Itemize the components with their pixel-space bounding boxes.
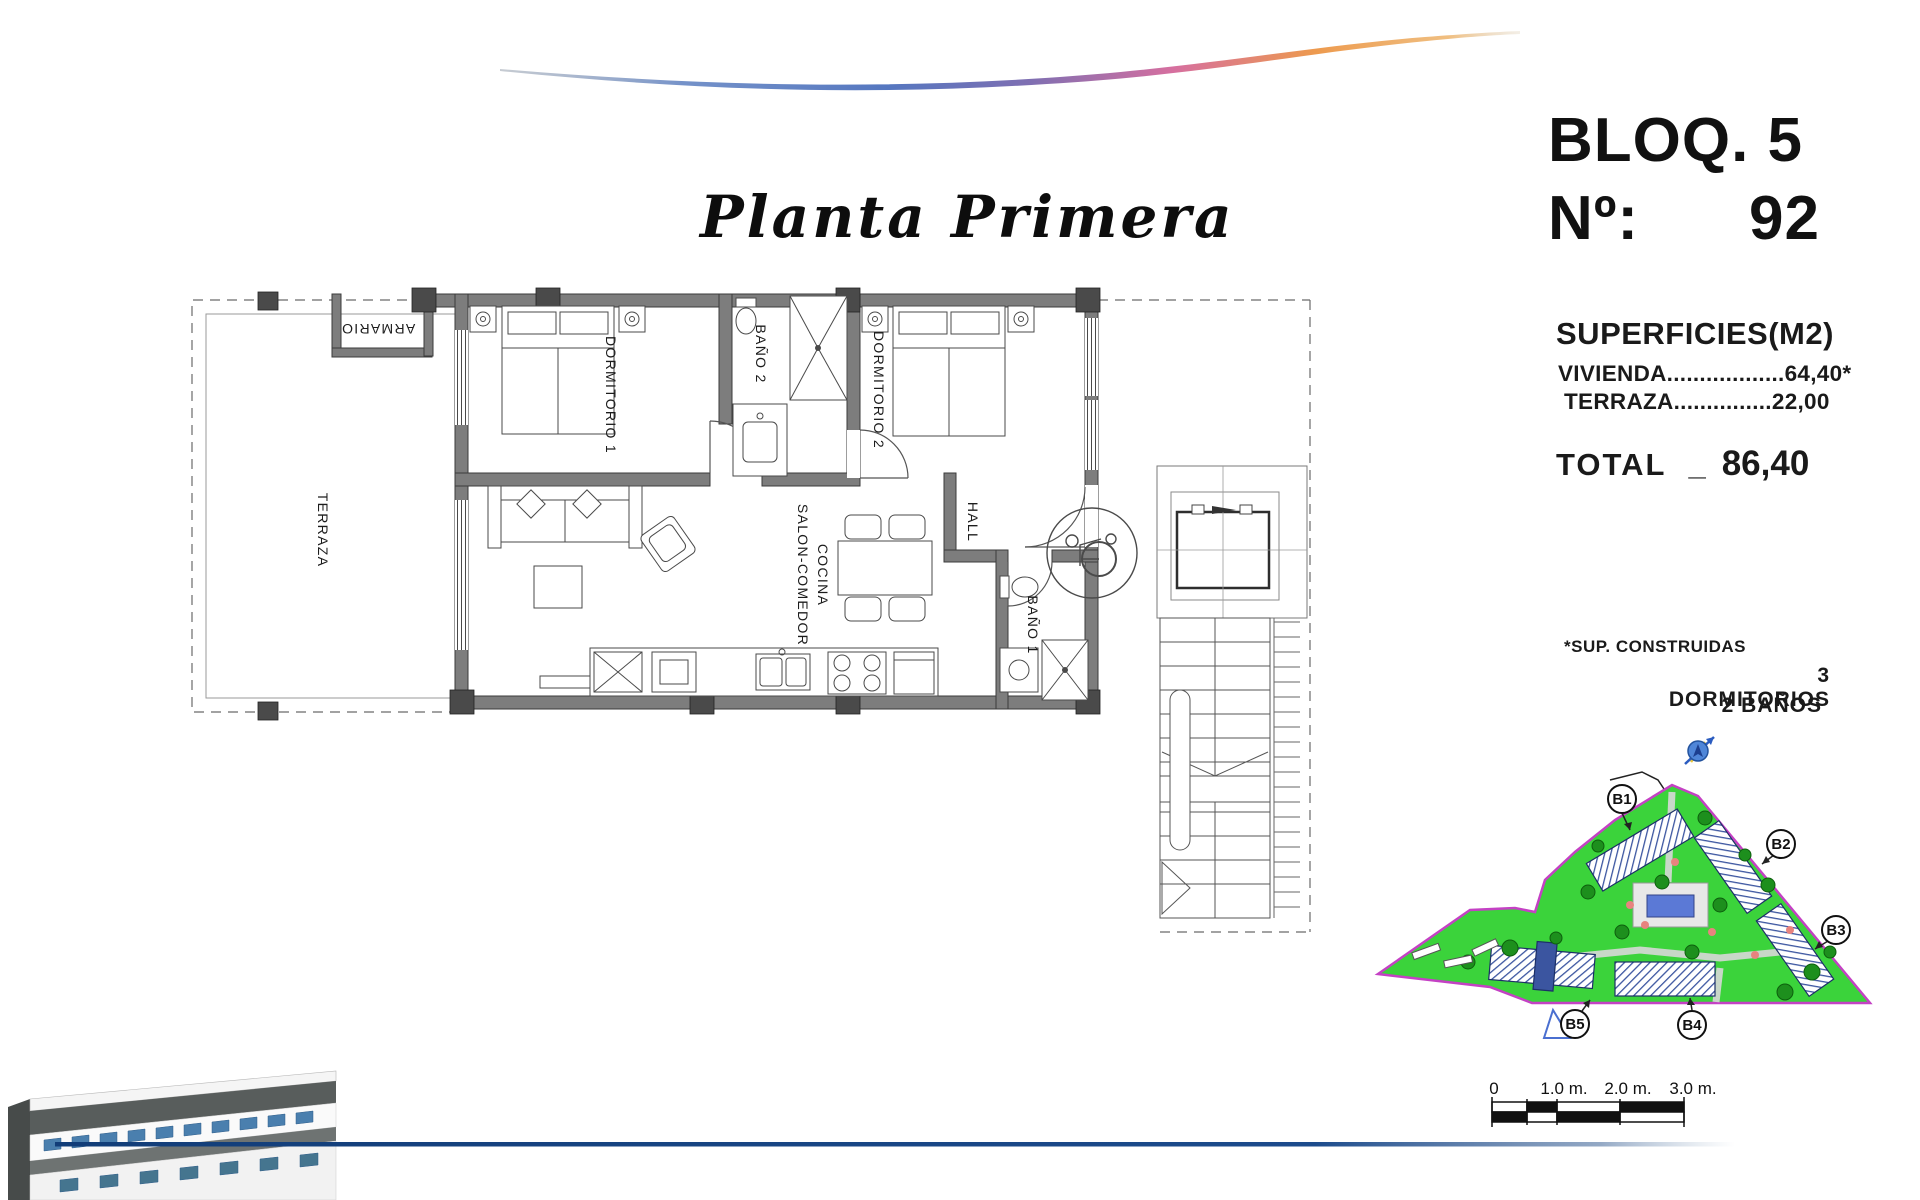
scale-3m: 3.0 m. xyxy=(1669,1079,1716,1098)
compass-icon xyxy=(1685,737,1714,764)
bathroom2-fixtures xyxy=(733,296,847,476)
room-label-bano2: BAÑO 2 xyxy=(753,324,769,383)
page-title: Planta Primera xyxy=(700,183,1220,251)
floor-plan: TERRAZA ARMARIO DORMITORIO 1 BAÑO 2 DORM… xyxy=(180,270,1320,950)
surface-label: VIVIENDA xyxy=(1558,361,1667,386)
shower-icon xyxy=(790,296,847,400)
total-label: TOTAL xyxy=(1556,447,1666,482)
gradient-swoosh xyxy=(430,5,1550,95)
surface-label: TERRAZA xyxy=(1564,389,1674,414)
vanity-icon xyxy=(733,404,787,476)
toilet-icon xyxy=(736,298,756,307)
svg-text:B2: B2 xyxy=(1771,836,1790,853)
scale-2m: 2.0 m. xyxy=(1604,1079,1651,1098)
block-marker-b5: B5 xyxy=(1561,1010,1589,1038)
surface-value: 22,00 xyxy=(1772,389,1830,414)
svg-text:B5: B5 xyxy=(1565,1016,1584,1033)
room-label-bano1: BAÑO 1 xyxy=(1025,595,1041,654)
dot-leader: .................. xyxy=(1667,361,1785,386)
block-marker-b4: B4 xyxy=(1678,1011,1706,1039)
total-value: 86,40 xyxy=(1722,444,1810,483)
room-label-salon-line1: SALON-COMEDOR xyxy=(795,504,811,646)
built-surface-note: *SUP. CONSTRUIDAS xyxy=(1564,637,1746,657)
terraza-slab-edge xyxy=(206,314,470,698)
swoosh-curve xyxy=(500,31,1520,90)
room-label-terraza: TERRAZA xyxy=(315,493,331,567)
kitchen-counter xyxy=(590,648,938,696)
elevator-icon xyxy=(1157,466,1307,628)
washbasin-icon xyxy=(1000,648,1038,692)
stair-railing xyxy=(1274,618,1300,918)
building-b4 xyxy=(1615,962,1715,996)
total-row: TOTAL_86,40 xyxy=(1556,444,1809,484)
svg-text:B4: B4 xyxy=(1682,1017,1702,1034)
scale-1m: 1.0 m. xyxy=(1540,1079,1587,1098)
surface-value: 64,40* xyxy=(1785,361,1852,386)
surface-row-terraza: TERRAZA...............22,00 xyxy=(1564,389,1830,415)
room-label-armario: ARMARIO xyxy=(341,321,415,337)
dishwasher-icon xyxy=(894,652,934,694)
armchair-icon xyxy=(639,515,697,574)
surface-row-vivienda: VIVIENDA..................64,40* xyxy=(1558,361,1851,387)
svg-text:B3: B3 xyxy=(1826,922,1845,939)
oven-icon xyxy=(652,652,696,692)
unit-number-row: Nº: 92 xyxy=(1548,188,1820,250)
toilet-icon xyxy=(1000,576,1009,598)
floorplan-sheet: { "header": { "title": "Planta Primera" … xyxy=(0,0,1920,1200)
room-label-hall: HALL xyxy=(965,502,981,542)
block-label: BLOQ. 5 xyxy=(1548,110,1803,172)
sofa-icon xyxy=(488,486,642,548)
block-marker-b3: B3 xyxy=(1822,916,1850,944)
stove-icon xyxy=(828,652,886,694)
sink-icon xyxy=(756,649,810,690)
block-marker-b1: B1 xyxy=(1608,785,1636,813)
surfaces-heading: SUPERFICIES(M2) xyxy=(1556,316,1834,352)
dining-table-icon xyxy=(838,515,932,621)
room-label-salon-line2: COCINA xyxy=(815,544,831,606)
room-label-dormitorio1: DORMITORIO 1 xyxy=(603,336,619,454)
dashed-boundary xyxy=(192,300,1310,932)
dot-leader: ............... xyxy=(1674,389,1772,414)
stairs-icon xyxy=(1160,618,1300,918)
room-label-dormitorio2: DORMITORIO 2 xyxy=(871,331,887,449)
total-separator: _ xyxy=(1688,447,1705,482)
scale-0: 0 xyxy=(1489,1079,1498,1098)
divider-line xyxy=(0,1128,1920,1168)
svg-text:B1: B1 xyxy=(1612,791,1631,808)
coffee-table-icon xyxy=(534,566,582,608)
block-marker-b2: B2 xyxy=(1767,830,1795,858)
unit-number-value: 92 xyxy=(1749,188,1820,250)
fridge-icon xyxy=(594,652,642,692)
shower-icon xyxy=(1042,640,1088,700)
pool xyxy=(1633,883,1708,927)
site-plan: B1 B2 B3 B4 B5 xyxy=(1360,700,1900,1060)
unit-number-label: Nº: xyxy=(1548,188,1639,250)
